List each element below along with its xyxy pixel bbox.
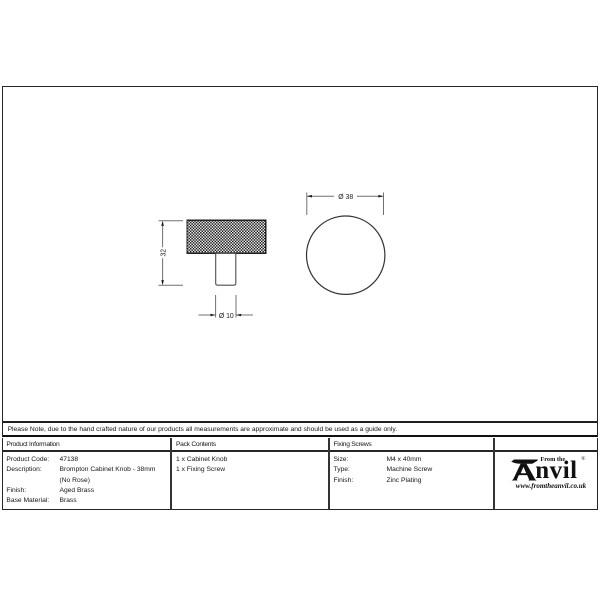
svg-text:Ø 38: Ø 38 — [338, 194, 353, 201]
svg-text:32: 32 — [160, 249, 167, 257]
svg-text:Ø 10: Ø 10 — [219, 313, 234, 320]
